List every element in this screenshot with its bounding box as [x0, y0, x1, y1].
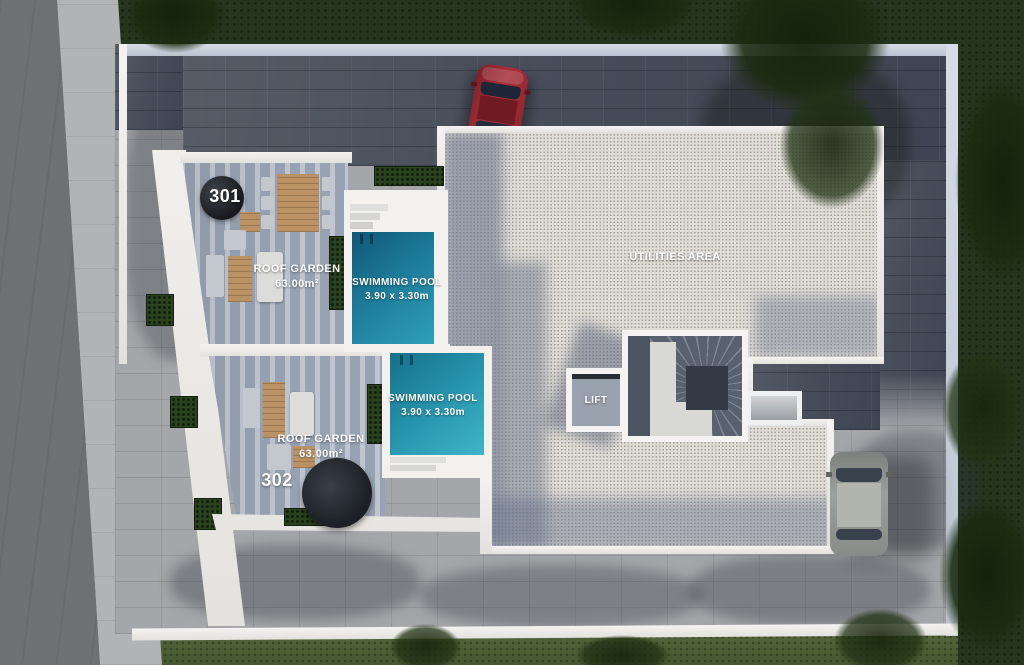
planter-hedge [146, 294, 174, 326]
car-mirror [471, 82, 478, 87]
pool-step [390, 465, 436, 471]
pool-302-label: SWIMMING POOL 3.90 x 3.30m [383, 392, 483, 419]
utilities-area-label: UTILITIES AREA [595, 250, 755, 265]
pool-step [350, 204, 388, 211]
pool-dimensions: 3.90 x 3.30m [383, 406, 483, 420]
pool-301-surround [344, 190, 448, 352]
pool-ladder [370, 234, 373, 244]
planter-hedge [170, 396, 198, 428]
roof-garden-301-label: ROOF GARDEN 63.00m² [236, 262, 358, 292]
garden-area: 63.00m² [236, 277, 358, 292]
boundary-wall-left [119, 44, 127, 364]
gravel-shadow [488, 498, 833, 550]
car-mirror [524, 90, 531, 95]
unit-301-top-wall [180, 152, 352, 163]
parapet-wall [746, 357, 884, 364]
dining-chair [261, 177, 274, 191]
tree-shadow [420, 565, 700, 627]
lift-door [572, 374, 620, 379]
garden-area: 63.00m² [260, 447, 382, 462]
stair-wall-shadow [628, 336, 650, 436]
roof-floor-plan: LIFT 301 R [0, 0, 1024, 665]
armchair [224, 230, 246, 250]
gray-car [830, 452, 888, 556]
car-roof [837, 483, 881, 527]
parapet-wall [482, 546, 834, 554]
tree-canopy [762, 60, 902, 230]
hedge [374, 166, 444, 186]
dining-chair [322, 215, 335, 229]
side-table-301 [240, 212, 260, 232]
sofa-302 [290, 392, 314, 436]
pool-dimensions: 3.90 x 3.30m [347, 290, 447, 304]
lift-label: LIFT [572, 394, 620, 408]
car-mirror [886, 472, 892, 477]
lift-shaft: LIFT [566, 368, 626, 432]
garden-title: ROOF GARDEN [236, 262, 358, 277]
roof-garden-302-label: ROOF GARDEN 63.00m² [260, 432, 382, 462]
car-windshield [836, 468, 882, 482]
pool-301-label: SWIMMING POOL 3.90 x 3.30m [347, 276, 447, 303]
pool-ladder [400, 355, 403, 365]
pool-step [390, 457, 446, 463]
unit-301-number: 301 [198, 184, 252, 208]
skylight [746, 391, 802, 425]
garden-title: ROOF GARDEN [260, 432, 382, 447]
dining-chair [322, 177, 335, 191]
pool-title: SWIMMING POOL [383, 392, 483, 406]
pool-step [350, 222, 373, 229]
pool-step [350, 213, 380, 220]
lounge-chair [206, 255, 224, 297]
unit-302-number: 302 [250, 468, 304, 492]
dining-chair [261, 196, 274, 210]
pool-ladder [360, 234, 363, 244]
lounge-chair [243, 388, 260, 428]
dining-chair [261, 215, 274, 229]
car-mirror [826, 472, 832, 477]
dining-chair [322, 196, 335, 210]
pool-ladder [410, 355, 413, 365]
stair-core [686, 366, 728, 410]
pool-title: SWIMMING POOL [347, 276, 447, 290]
staircase [622, 330, 748, 442]
sun-lounger [263, 382, 285, 438]
car-rear-window [836, 529, 882, 540]
gravel-shadow [755, 296, 880, 356]
umbrella-302 [302, 458, 372, 528]
unit-302-side-wall [480, 468, 492, 554]
dining-table-301 [277, 174, 319, 232]
